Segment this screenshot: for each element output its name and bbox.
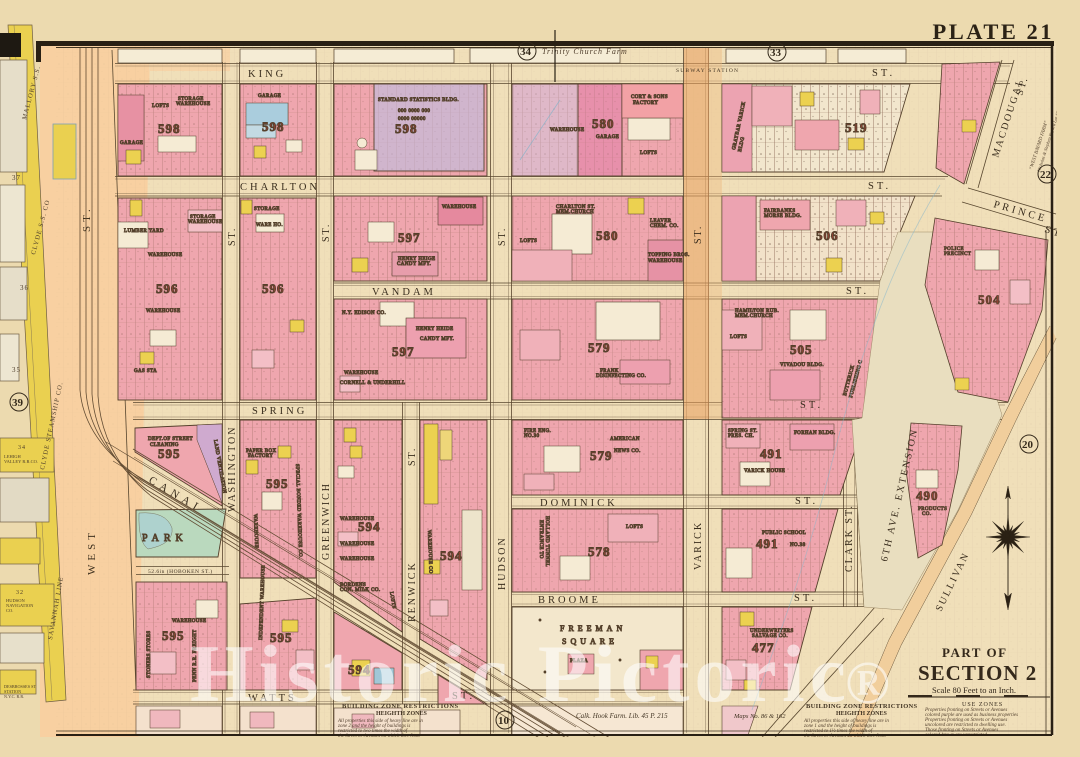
- svg-text:Historic Pictoric: Historic Pictoric: [190, 628, 851, 719]
- svg-text:®: ®: [845, 650, 890, 716]
